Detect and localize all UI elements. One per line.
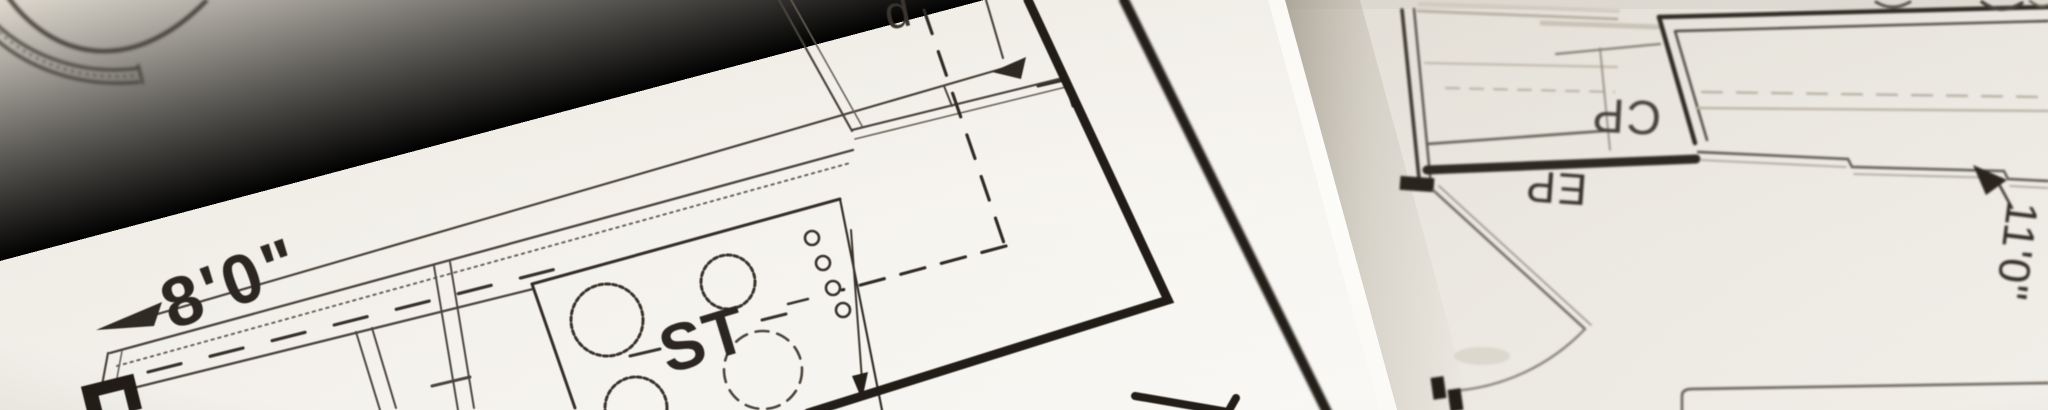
- blueprint-photo: EP CP: [0, 0, 2048, 410]
- vignette-overlay: [0, 0, 2048, 410]
- blueprint-scene: EP CP: [0, 0, 2048, 410]
